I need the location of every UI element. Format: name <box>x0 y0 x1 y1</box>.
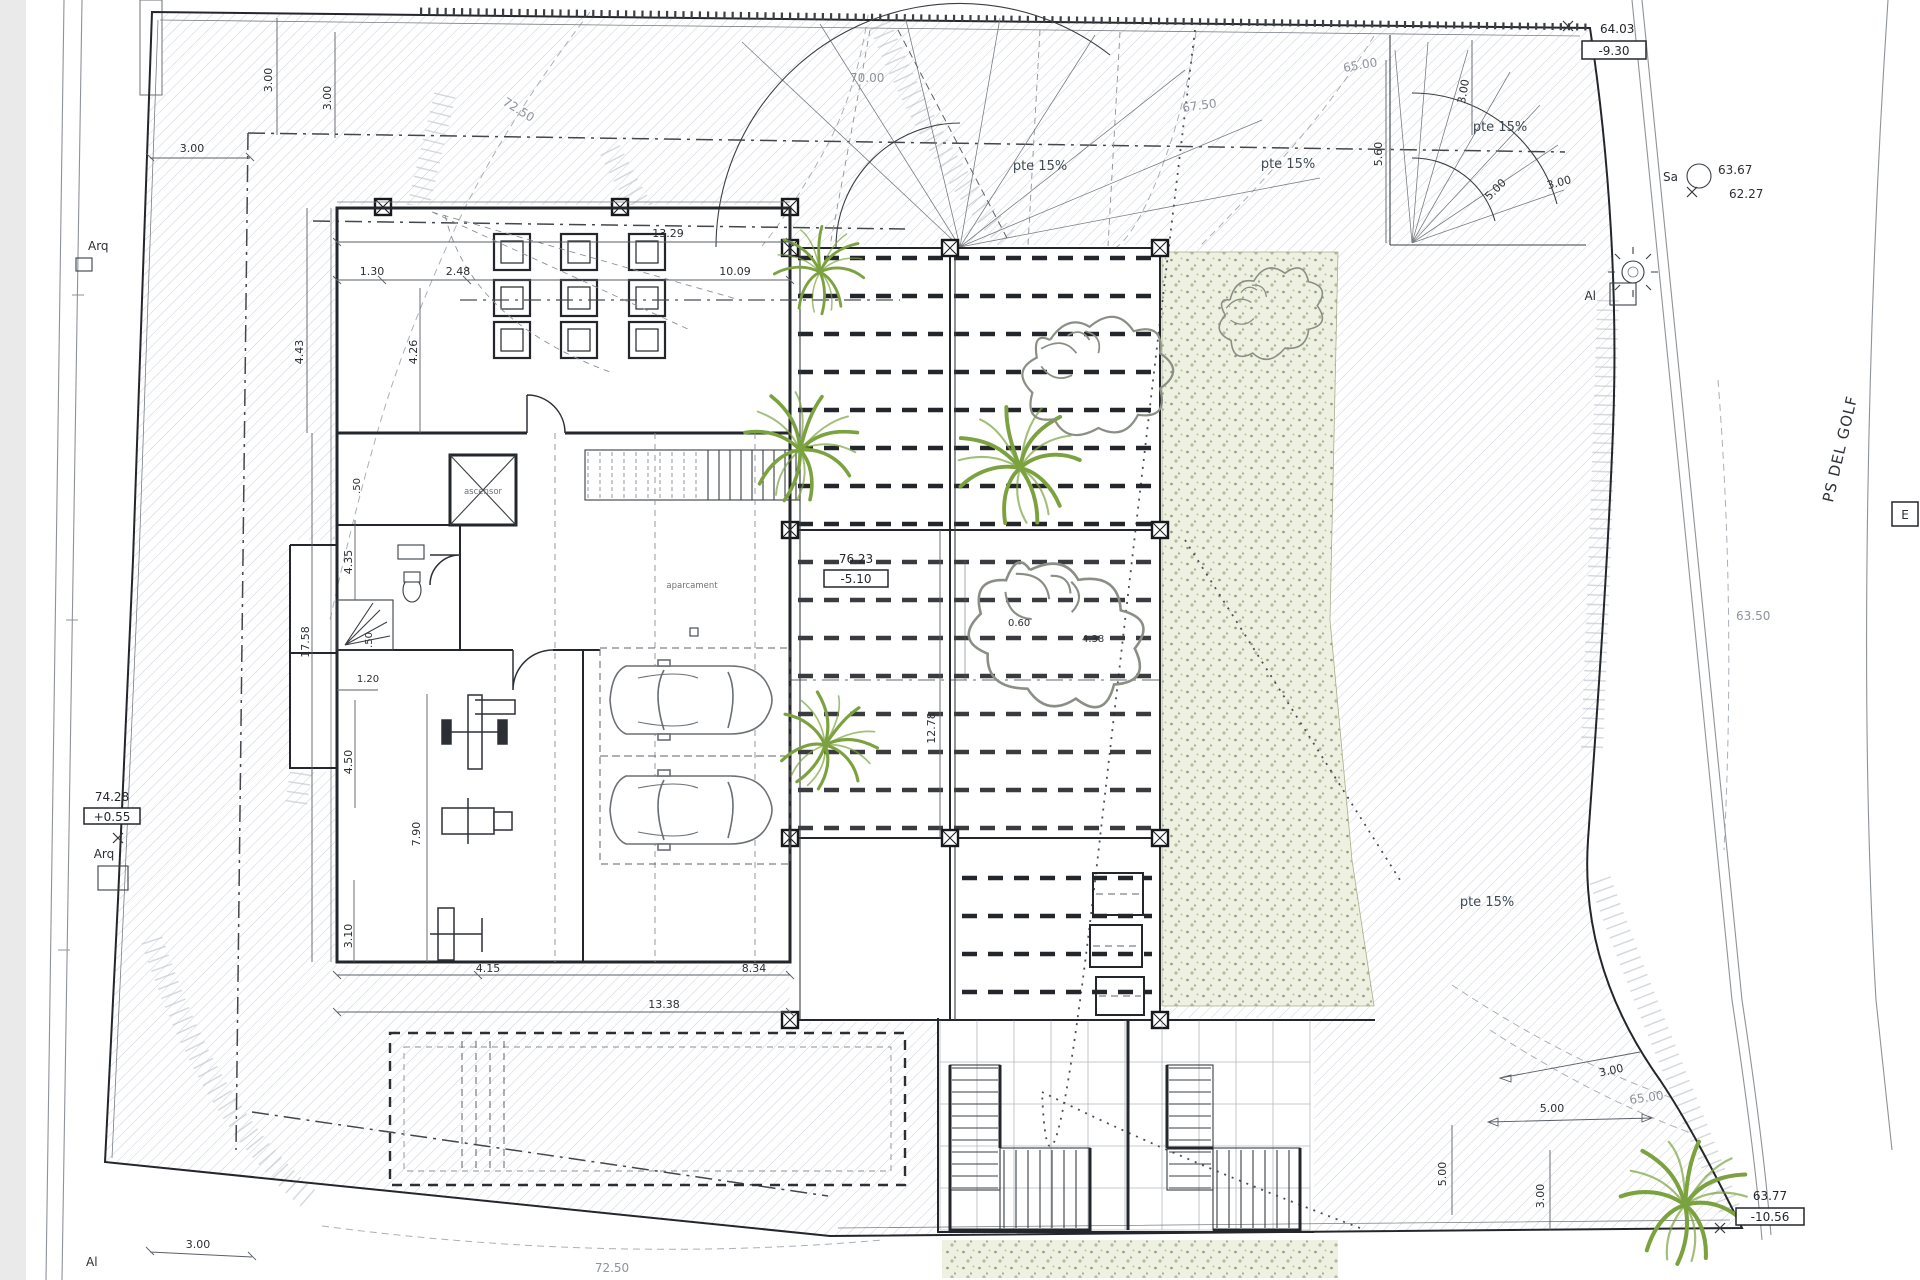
contour-label: 70.00 <box>850 71 884 85</box>
slope-label: pte 15% <box>1013 159 1067 174</box>
level-rel: -10.56 <box>1751 1210 1790 1224</box>
street-name: PS DEL GOLF <box>1819 394 1861 504</box>
survey-v2: 62.27 <box>1729 187 1763 201</box>
e-label: E <box>1901 508 1909 522</box>
dim-label: .50 <box>352 478 363 494</box>
dim-label: 3.00 <box>186 1238 211 1251</box>
left-road <box>46 0 84 1280</box>
dim-label: 17.58 <box>299 626 312 658</box>
marker-al-right: Al <box>1584 289 1596 303</box>
dim-label: 7.90 <box>410 822 423 847</box>
survey-v1: 63.67 <box>1718 163 1752 177</box>
dim-label: 4.38 <box>1082 634 1104 645</box>
e-box: E <box>1892 502 1918 526</box>
dim-label: 4.26 <box>407 340 420 365</box>
dim-label: 5.60 <box>1372 142 1385 167</box>
dim-label: 4.50 <box>342 750 355 775</box>
marker-arq-top: Arq <box>88 239 109 253</box>
marker-al-bottom: Al <box>86 1255 98 1269</box>
survey-point-sa: Sa 63.67 62.27 <box>1663 163 1763 201</box>
marker-arq-left: Arq <box>94 847 115 861</box>
dim-label: 1.30 <box>360 265 385 278</box>
contour-label: 72.50 <box>595 1261 629 1275</box>
roof-squares <box>494 234 665 358</box>
dim-label: 5.00 <box>1540 1102 1565 1115</box>
car <box>610 770 772 850</box>
dim-label: 3.00 <box>1534 1184 1547 1209</box>
dim-label: 8.34 <box>742 962 767 975</box>
dim-label: 1.20 <box>357 674 379 685</box>
level-rel: +0.55 <box>94 810 131 824</box>
dim-label: 2.48 <box>446 265 471 278</box>
dim-label: 4.35 <box>342 550 355 575</box>
dim-label: 3.00 <box>180 142 205 155</box>
dim-label: .50 <box>364 632 375 648</box>
level-rel: -9.30 <box>1598 44 1629 58</box>
contour-label: 63.50 <box>1736 609 1770 623</box>
slope-label: pte 15% <box>1460 895 1514 910</box>
dim-label: 3.00 <box>321 86 334 111</box>
dim-label: 13.38 <box>648 998 680 1011</box>
dim-label: 3.10 <box>342 924 355 949</box>
level-value: 74.28 <box>95 790 129 804</box>
dim-label: 10.09 <box>719 265 751 278</box>
dim-label: 12.78 <box>925 712 938 744</box>
survey-label: Sa <box>1663 170 1678 184</box>
room-label-garage: aparcament <box>666 581 718 591</box>
dim-label: 4.43 <box>293 340 306 365</box>
dim-label: 5.00 <box>1436 1162 1449 1187</box>
dim-label: 3.00 <box>262 68 275 93</box>
dim-label: 4.15 <box>476 962 501 975</box>
scan-edge <box>0 0 26 1280</box>
level-value: 76.23 <box>839 552 873 566</box>
level-value: 63.77 <box>1753 1189 1787 1203</box>
slope-label: pte 15% <box>1473 120 1527 135</box>
dim-label: 0.60 <box>1008 618 1030 629</box>
room-label-elevator: ascensor <box>464 487 503 497</box>
site-plan: 3.00 3.00 3.00 13.29 1.30 2.48 10.09 72.… <box>0 0 1920 1280</box>
level-rel: -5.10 <box>840 572 871 586</box>
car <box>610 660 772 740</box>
level-value: 64.03 <box>1600 22 1634 36</box>
sun-symbol <box>1608 247 1658 297</box>
dim-label: 13.29 <box>652 227 684 240</box>
slope-label: pte 15% <box>1261 157 1315 172</box>
